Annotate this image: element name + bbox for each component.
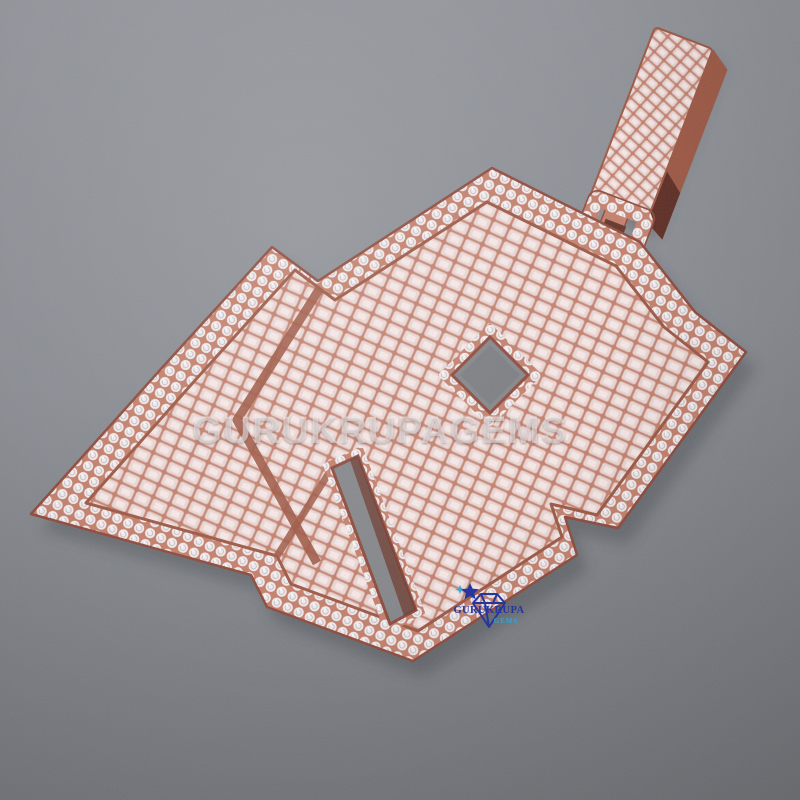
star-icon (461, 583, 479, 599)
watermark-text: GURUKRUPAGEMS (192, 410, 568, 453)
product-photo: GURUKRUPAGEMS GURUKRUPA GEMS (0, 0, 800, 800)
photo-grain (0, 0, 800, 800)
brand-logo: GURUKRUPA GEMS (450, 583, 528, 649)
logo-brand-text: GURUKRUPA (453, 605, 524, 616)
pendant-graphic (0, 0, 800, 800)
logo-sub-text: GEMS (494, 617, 519, 625)
